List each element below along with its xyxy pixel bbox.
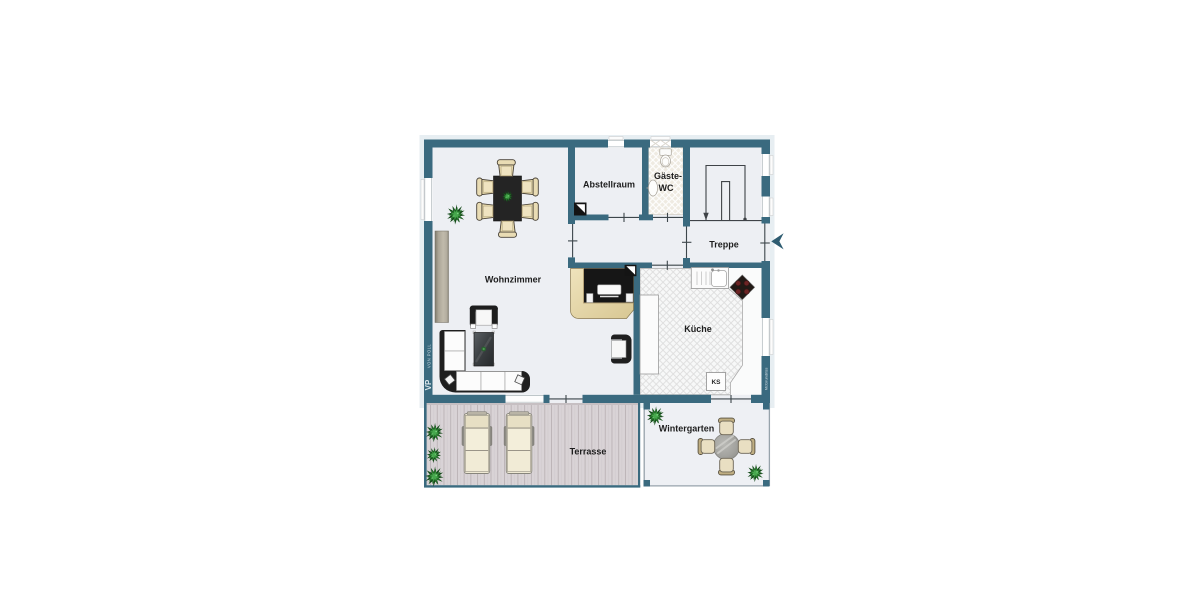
svg-text:WC: WC [659,183,674,193]
svg-text:VP: VP [424,379,433,390]
svg-text:Abstellraum: Abstellraum [583,180,635,190]
svg-text:Küche: Küche [684,324,712,334]
svg-text:McGrundriss: McGrundriss [764,368,769,391]
svg-text:Terrasse: Terrasse [570,447,607,457]
svg-text:Wintergarten: Wintergarten [659,424,714,434]
svg-text:KS: KS [711,379,721,386]
svg-text:Gäste-: Gäste- [654,171,682,181]
svg-text:VON POLL: VON POLL [427,344,432,368]
svg-text:Treppe: Treppe [709,240,739,250]
svg-text:Wohnzimmer: Wohnzimmer [485,275,542,285]
